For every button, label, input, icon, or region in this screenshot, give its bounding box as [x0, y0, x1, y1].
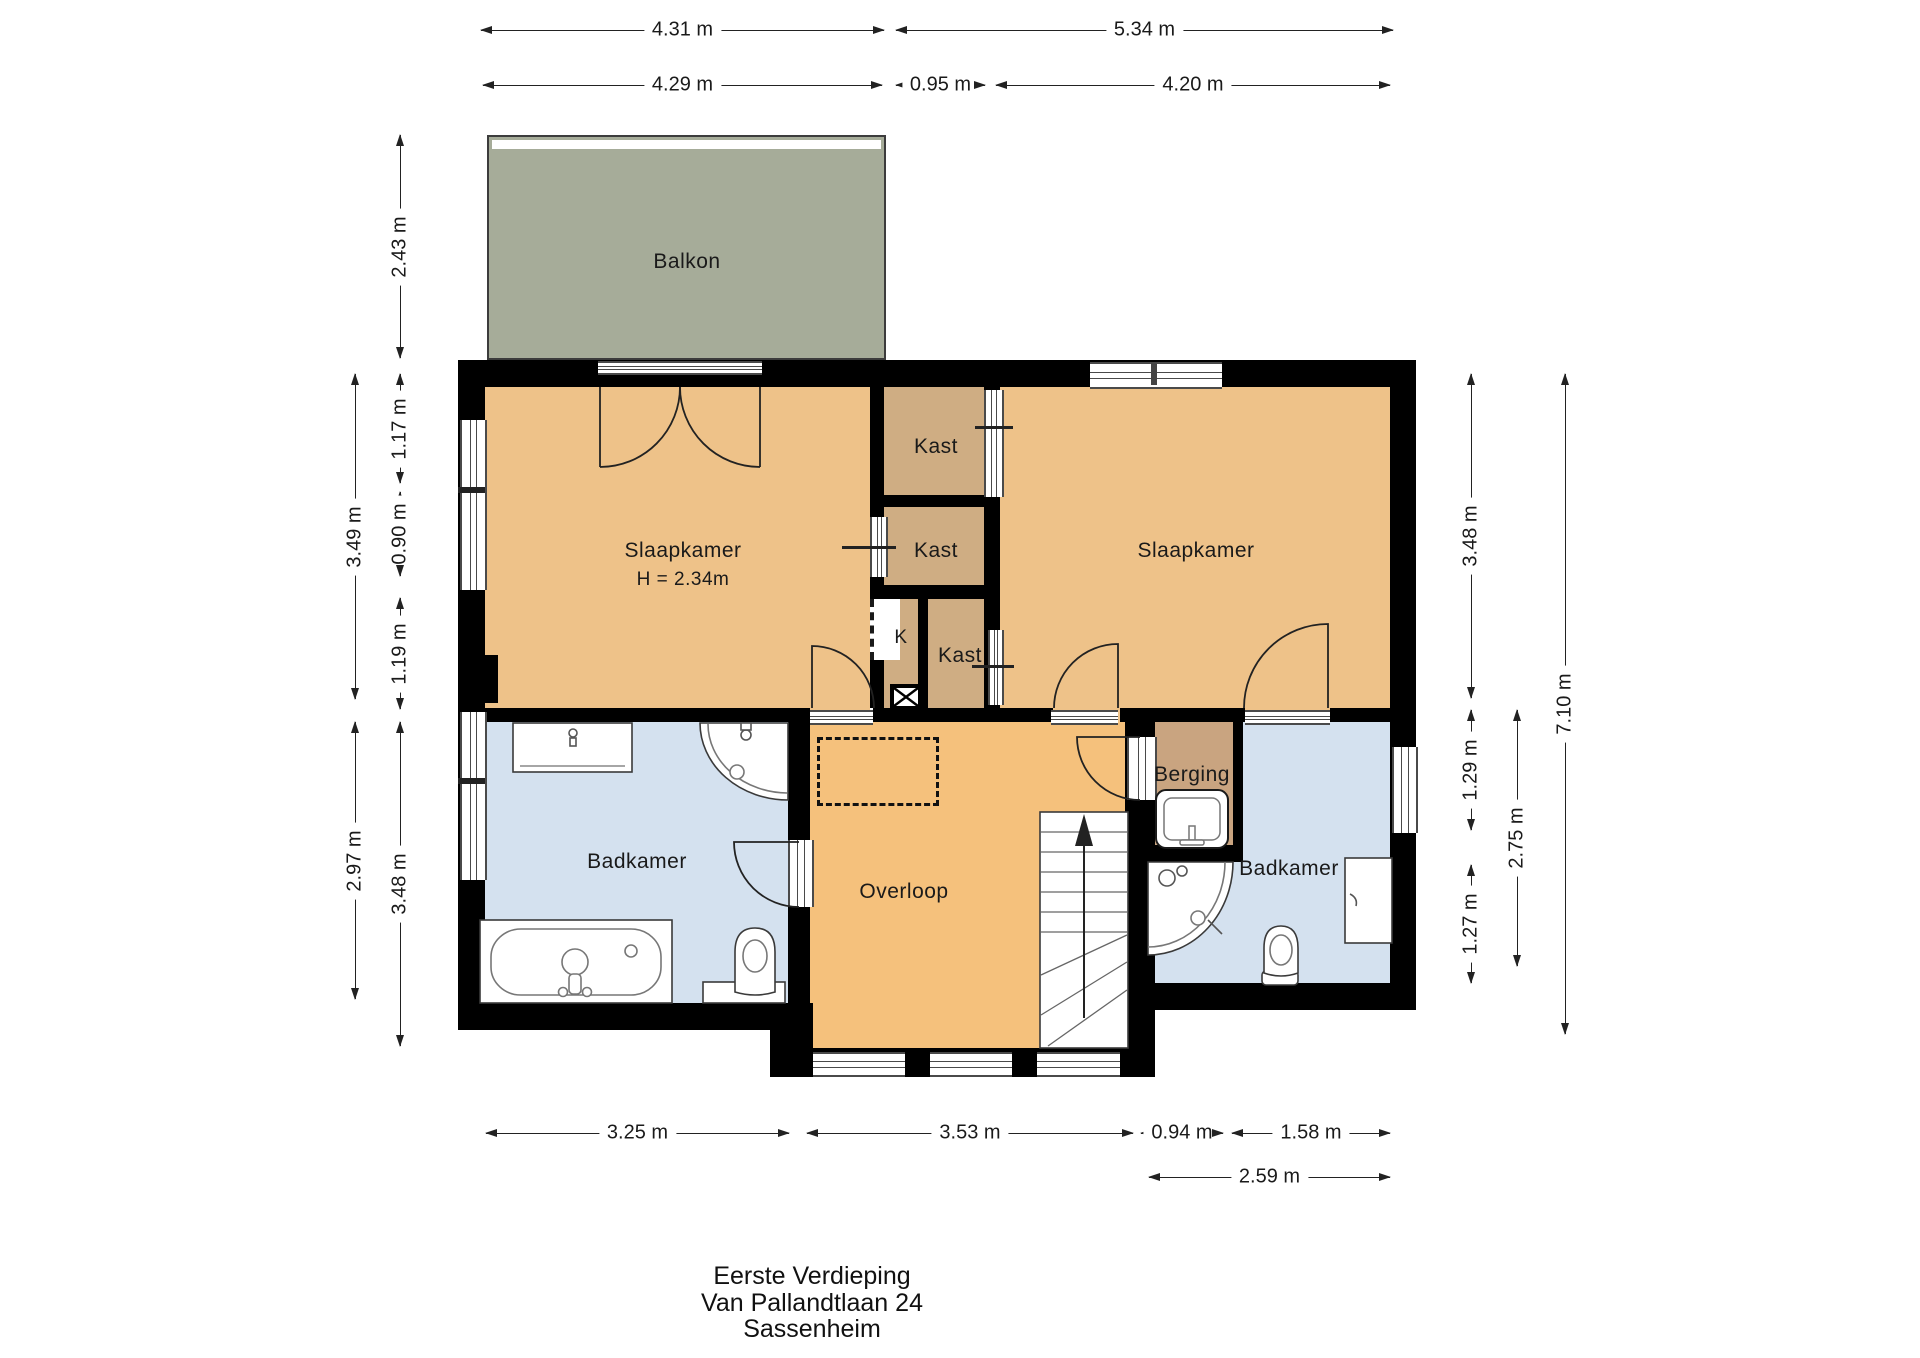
dim-left-297: 2.97 m — [355, 722, 356, 999]
door-badkamer-links — [788, 840, 814, 907]
balkon-door-rail — [598, 361, 762, 375]
wall-divider-1 — [485, 708, 810, 722]
window-trap-3 — [1037, 1052, 1120, 1077]
dim-left-349: 3.49 m — [355, 374, 356, 699]
dim-right-127: 1.27 m — [1471, 865, 1472, 983]
title-address: Van Pallandtlaan 24 — [701, 1290, 923, 1317]
door-tick-kast-boven — [975, 426, 1013, 429]
dim-bottom-158: 1.58 m — [1232, 1133, 1390, 1134]
balkon-inner-strip — [492, 140, 881, 149]
title-floor: Eerste Verdieping — [701, 1263, 923, 1290]
door-drempel-slaapkamer-rechts — [1051, 710, 1118, 725]
wall-divider-2 — [873, 708, 1053, 722]
dim-bottom-259: 2.59 m — [1149, 1177, 1390, 1178]
wall-bottom-links — [458, 1003, 790, 1030]
dim-bottom-353: 3.53 m — [807, 1133, 1133, 1134]
dim-right-710: 7.10 m — [1565, 374, 1566, 1034]
wall-kast-tussen-2 — [870, 585, 984, 599]
dim-right-275: 2.75 m — [1517, 710, 1518, 966]
wall-kast-tussen-1 — [884, 495, 984, 507]
title-block: Eerste Verdieping Van Pallandtlaan 24 Sa… — [701, 1263, 923, 1343]
dim-top-431: 4.31 m — [481, 30, 884, 31]
label-k-schacht: K — [894, 627, 907, 649]
label-balkon: Balkon — [653, 250, 720, 274]
dim-top-095: 0.95 m — [896, 85, 985, 86]
door-drempel-badkamer-rechts — [1245, 710, 1330, 725]
label-hoogte-slaapkamer-links: H = 2.34m — [637, 569, 730, 591]
dim-left-243: 2.43 m — [400, 135, 401, 358]
label-overloop: Overloop — [859, 880, 948, 904]
door-tick-kast-midden — [842, 546, 896, 549]
window-badkamer-rechts — [1392, 747, 1418, 833]
label-slaapkamer-rechts: Slaapkamer — [1137, 539, 1254, 563]
flue-box-inner — [894, 688, 918, 706]
dim-bottom-094: 0.94 m — [1141, 1133, 1223, 1134]
dim-top-429: 4.29 m — [483, 85, 882, 86]
label-slaapkamer-links: Slaapkamer — [624, 539, 741, 563]
window-trap-2 — [930, 1052, 1012, 1077]
title-city: Sassenheim — [701, 1316, 923, 1343]
label-badkamer-rechts: Badkamer — [1239, 857, 1339, 881]
dim-top-534: 5.34 m — [896, 30, 1393, 31]
dim-left-119: 1.19 m — [400, 598, 401, 709]
label-berging: Berging — [1154, 763, 1230, 787]
window-slaapkamer-links — [460, 420, 487, 590]
wall-bottom-hoek — [770, 1003, 813, 1077]
dim-left-090: 0.90 m — [400, 492, 401, 576]
window-badkamer-links — [460, 712, 487, 880]
wall-berging-rechts — [1233, 722, 1243, 862]
dim-bottom-325: 3.25 m — [486, 1133, 789, 1134]
wall-pilaster-links — [485, 655, 498, 703]
wall-bottom-rechts — [1155, 983, 1416, 1010]
window-mullion-links-2 — [458, 778, 485, 784]
room-balkon — [487, 135, 886, 360]
window-mullion-links-1 — [458, 487, 485, 493]
door-kast-boven — [984, 390, 1004, 497]
label-kast-midden: Kast — [914, 539, 958, 563]
vide-dashed-box — [817, 737, 939, 806]
dim-left-117: 1.17 m — [400, 374, 401, 483]
dim-top-420: 4.20 m — [996, 85, 1390, 86]
window-mullion-boven — [1151, 362, 1157, 385]
dim-right-348: 3.48 m — [1471, 374, 1472, 698]
dim-left-348: 3.48 m — [400, 722, 401, 1046]
wall-berging-onder — [1125, 845, 1243, 862]
label-kast-boven: Kast — [914, 435, 958, 459]
label-badkamer-links: Badkamer — [587, 850, 687, 874]
wall-right — [1390, 360, 1416, 1010]
floor-plan: Balkon Slaapkamer H = 2.34m Kast Kast K … — [0, 0, 1920, 1358]
window-trap-1 — [813, 1052, 905, 1077]
door-berging — [1127, 737, 1157, 800]
room-badkamer-rechts-deel2 — [1155, 862, 1243, 983]
dim-right-129: 1.29 m — [1471, 710, 1472, 830]
wall-divider-3 — [1120, 708, 1245, 722]
wall-divider-4 — [1330, 708, 1390, 722]
room-badkamer-rechts — [1243, 722, 1390, 983]
label-kast-onder: Kast — [938, 644, 982, 668]
door-drempel-slaapkamer-links — [810, 710, 873, 725]
